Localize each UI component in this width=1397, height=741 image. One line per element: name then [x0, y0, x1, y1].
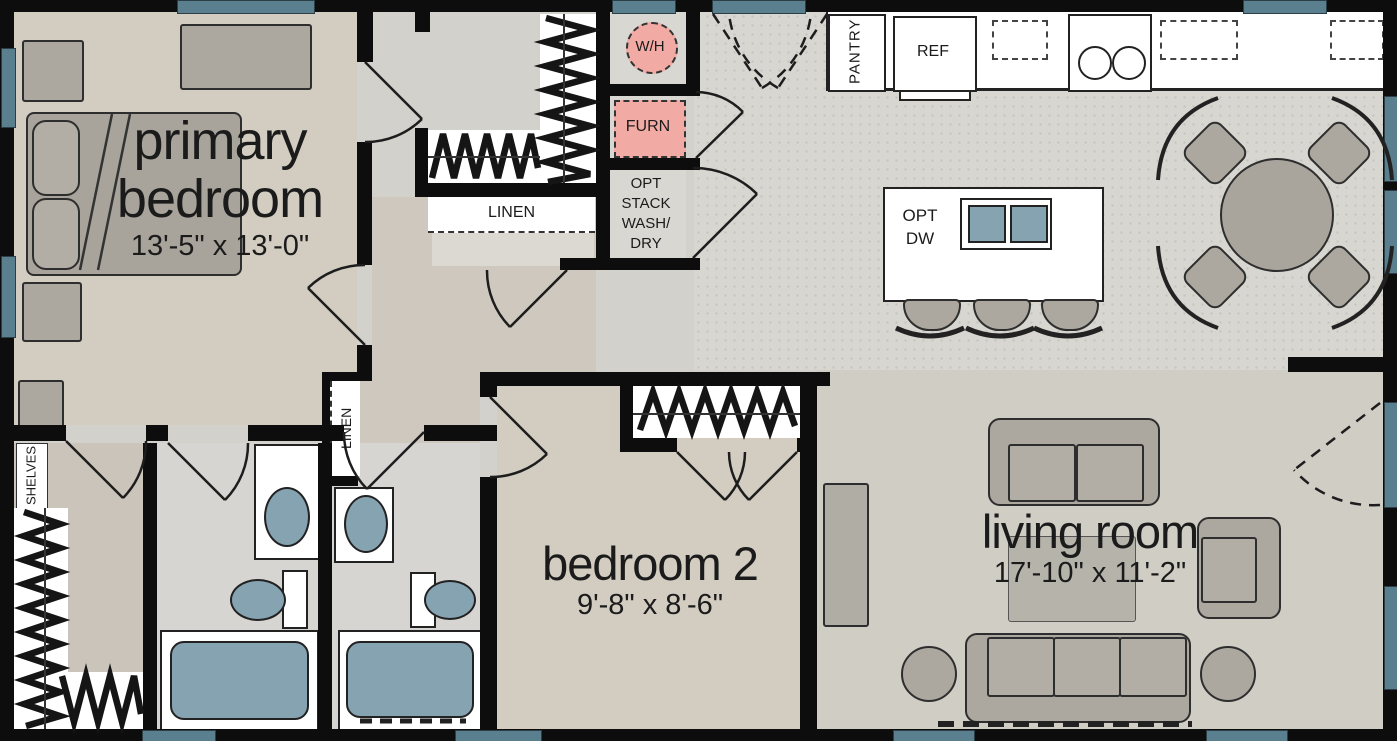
shelves-label: SHELVES: [16, 443, 46, 507]
dishwasher-basin: [968, 205, 1006, 243]
wall: [248, 425, 332, 441]
window: [893, 730, 975, 741]
loveseat-cushion: [1008, 444, 1076, 502]
primary-closet-rod-area: [428, 130, 540, 183]
window: [1384, 190, 1397, 274]
floor-plan: primary bedroom 13'-5" x 13'-0" bedroom …: [0, 0, 1397, 741]
window: [712, 0, 806, 14]
window: [1384, 586, 1397, 690]
room-name: bedroom 2: [497, 540, 803, 587]
dresser: [180, 24, 312, 90]
wall: [424, 425, 497, 441]
bath2-tub: [346, 641, 474, 718]
opt-stack-line: DRY: [598, 234, 694, 254]
patio-door-glass: [1384, 402, 1397, 508]
sofa-cushion: [1119, 637, 1187, 697]
nightstand: [22, 282, 82, 342]
window: [177, 0, 315, 14]
primary-closet-rod-area: [540, 14, 596, 183]
bedroom2-label: bedroom 2 9'-8" x 8'-6": [497, 540, 803, 620]
bedroom2-closet-rod-area: [633, 386, 800, 438]
opt-stack-line: OPT: [598, 174, 694, 194]
primary-bedroom-label: primary bedroom 13'-5" x 13'-0": [55, 112, 385, 261]
wall: [415, 12, 430, 32]
wall: [560, 258, 700, 270]
wall: [620, 438, 677, 452]
opt-stack-line: STACK: [598, 194, 694, 214]
wall: [14, 425, 66, 441]
window: [612, 0, 676, 14]
opt-dw-line: DW: [896, 227, 944, 250]
room-dims: 17'-10" x 11'-2": [915, 559, 1265, 588]
opt-dw-line: OPT: [896, 204, 944, 227]
room-name: bedroom: [55, 170, 385, 228]
refrigerator-label: REF: [893, 16, 973, 88]
bath2-sink: [344, 495, 388, 553]
side-table: [1200, 646, 1256, 702]
opt-stack-washdry-label: OPT STACK WASH/ DRY: [598, 174, 694, 254]
window: [142, 730, 216, 741]
wall: [322, 372, 372, 381]
refrigerator-handle: [899, 90, 971, 101]
wall: [357, 12, 373, 62]
upper-cabinet-dashed: [992, 20, 1048, 60]
bath1-sink: [264, 487, 310, 547]
wall: [480, 372, 830, 386]
wall: [797, 438, 817, 452]
window: [1384, 96, 1397, 182]
furnace-label: FURN: [614, 100, 682, 154]
window: [1206, 730, 1288, 741]
opt-dw-label: OPT DW: [896, 204, 944, 250]
wall: [596, 84, 700, 96]
window: [1, 48, 16, 128]
wall: [596, 158, 700, 170]
room-dims: 13'-5" x 13'-0": [55, 232, 385, 261]
side-table: [901, 646, 957, 702]
bath2-toilet-bowl: [424, 580, 476, 620]
dining-table: [1220, 158, 1334, 272]
room-name: living room: [915, 508, 1265, 555]
bath1-toilet-bowl: [230, 579, 286, 621]
wall: [332, 425, 344, 441]
wall: [318, 443, 332, 729]
window: [1, 256, 16, 338]
dishwasher-basin: [1010, 205, 1048, 243]
living-room-label: living room 17'-10" x 11'-2": [915, 508, 1265, 588]
loveseat-cushion: [1076, 444, 1144, 502]
wall: [480, 477, 497, 729]
wall: [146, 425, 168, 441]
upper-cabinet-dashed: [1330, 20, 1384, 60]
wall: [415, 128, 428, 186]
linen-hall-label: LINEN: [428, 197, 595, 229]
sink-bowl: [1078, 46, 1112, 80]
room-name: primary: [55, 112, 385, 170]
dresser: [18, 380, 64, 428]
water-heater-label: W/H: [626, 22, 674, 70]
room-dims: 9'-8" x 8'-6": [497, 591, 803, 620]
bath1-tub: [170, 641, 309, 720]
window: [1243, 0, 1327, 14]
wall: [1288, 357, 1397, 372]
wall: [143, 443, 157, 729]
window: [455, 730, 542, 741]
wall: [415, 183, 596, 197]
wall: [357, 345, 372, 372]
media-console: [823, 483, 869, 627]
sofa-cushion: [1053, 637, 1121, 697]
shelves-rod-strip: [55, 672, 143, 729]
sofa-cushion: [987, 637, 1055, 697]
upper-cabinet-dashed: [1160, 20, 1238, 60]
pantry-label: PANTRY: [828, 14, 882, 88]
nightstand: [22, 40, 84, 102]
opt-stack-line: WASH/: [598, 214, 694, 234]
sink-bowl: [1112, 46, 1146, 80]
